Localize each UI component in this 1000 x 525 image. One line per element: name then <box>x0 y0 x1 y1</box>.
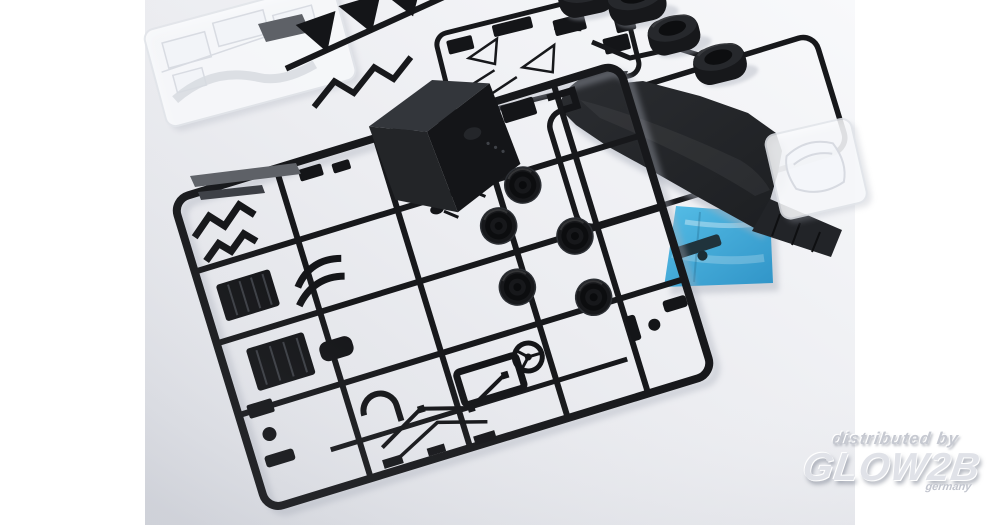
model-kit-photo <box>0 0 1000 525</box>
photo-vignette <box>145 0 855 525</box>
product-photo-page: distributed by GLOW2B germany <box>0 0 1000 525</box>
